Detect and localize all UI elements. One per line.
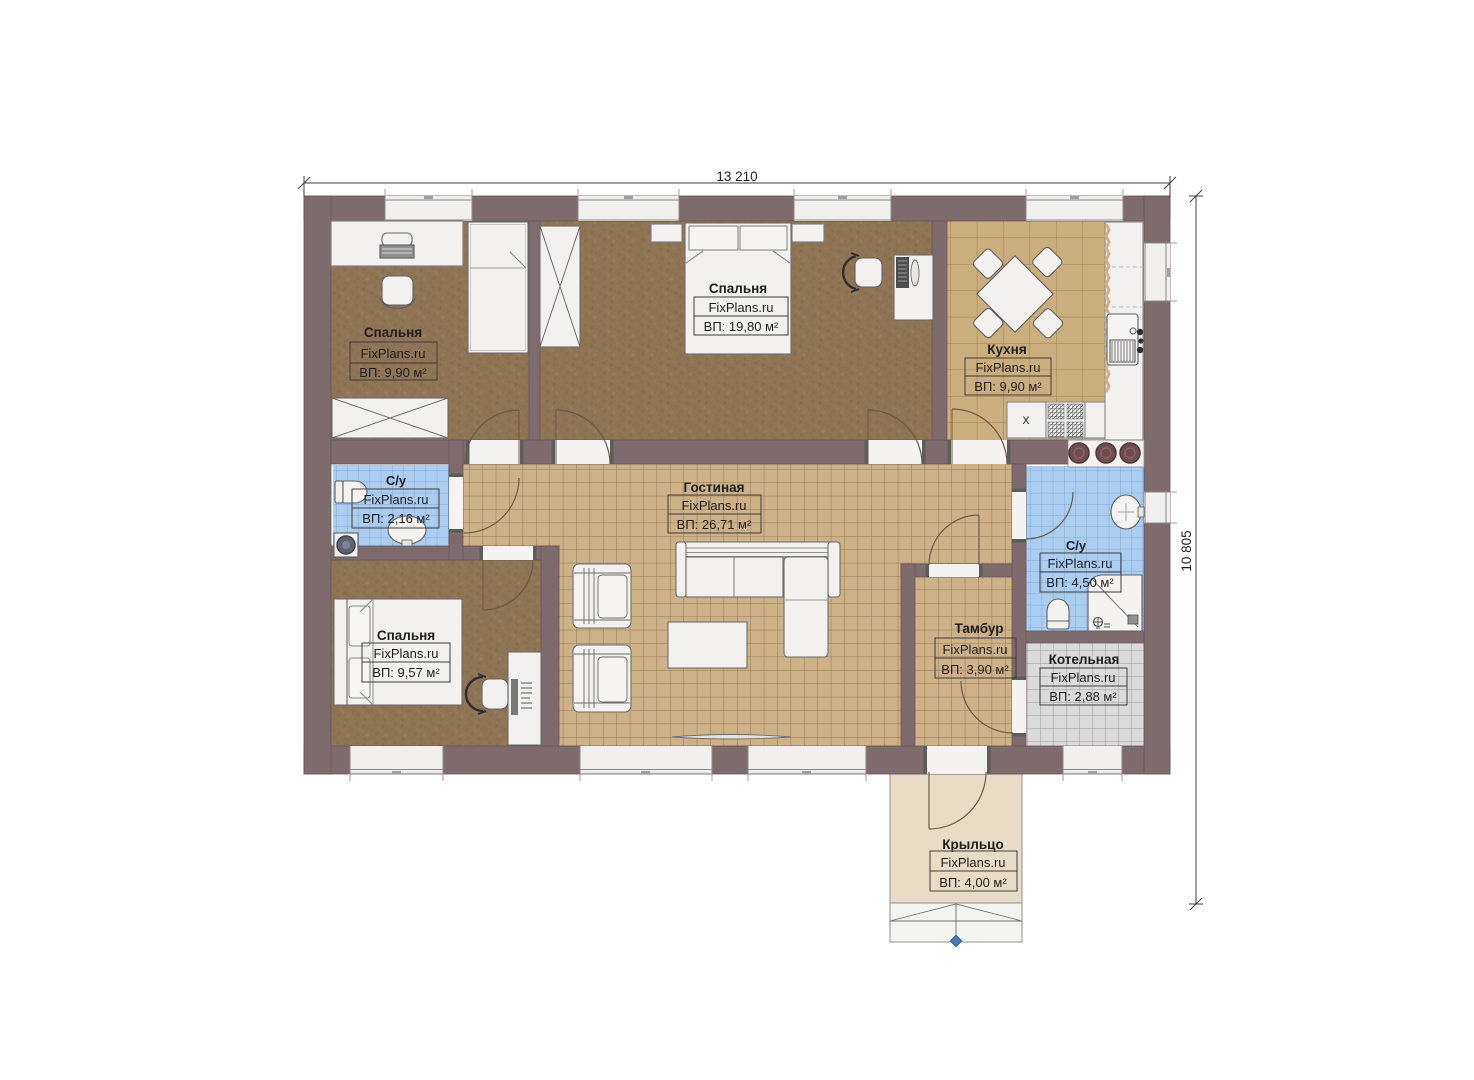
svg-text:ВП: 3,90 м²: ВП: 3,90 м²: [941, 662, 1009, 677]
svg-text:ВП: 2,16 м²: ВП: 2,16 м²: [362, 511, 430, 526]
svg-text:FixPlans.ru: FixPlans.ru: [708, 300, 773, 315]
svg-text:FixPlans.ru: FixPlans.ru: [940, 855, 1005, 870]
svg-text:FixPlans.ru: FixPlans.ru: [942, 642, 1007, 657]
svg-text:Крыльцо: Крыльцо: [942, 837, 1003, 852]
svg-text:FixPlans.ru: FixPlans.ru: [363, 492, 428, 507]
svg-text:С/у: С/у: [386, 473, 407, 488]
svg-text:FixPlans.ru: FixPlans.ru: [360, 346, 425, 361]
svg-text:x: x: [1023, 411, 1030, 427]
svg-text:ВП: 4,00 м²: ВП: 4,00 м²: [939, 875, 1007, 890]
svg-text:FixPlans.ru: FixPlans.ru: [975, 360, 1040, 375]
svg-text:Кухня: Кухня: [987, 342, 1026, 357]
svg-text:ВП: 9,90 м²: ВП: 9,90 м²: [359, 365, 427, 380]
svg-text:Спальня: Спальня: [709, 281, 767, 296]
svg-text:Котельная: Котельная: [1049, 652, 1120, 667]
svg-text:С/у: С/у: [1066, 538, 1087, 553]
svg-text:FixPlans.ru: FixPlans.ru: [1050, 670, 1115, 685]
svg-text:Тамбур: Тамбур: [955, 621, 1004, 636]
svg-text:ВП: 9,57 м²: ВП: 9,57 м²: [372, 665, 440, 680]
svg-text:Гостиная: Гостиная: [683, 480, 744, 495]
svg-text:Спальня: Спальня: [377, 628, 435, 643]
svg-text:Спальня: Спальня: [364, 325, 422, 340]
svg-text:FixPlans.ru: FixPlans.ru: [681, 498, 746, 513]
svg-text:ВП: 26,71 м²: ВП: 26,71 м²: [677, 517, 752, 532]
svg-text:ВП: 9,90 м²: ВП: 9,90 м²: [974, 379, 1042, 394]
svg-text:FixPlans.ru: FixPlans.ru: [373, 646, 438, 661]
svg-text:10 805: 10 805: [1179, 530, 1194, 571]
svg-text:ВП: 19,80 м²: ВП: 19,80 м²: [704, 319, 779, 334]
svg-text:13 210: 13 210: [716, 169, 757, 184]
svg-text:ВП: 2,88 м²: ВП: 2,88 м²: [1049, 689, 1117, 704]
svg-text:FixPlans.ru: FixPlans.ru: [1047, 556, 1112, 571]
svg-text:ВП: 4,50 м²: ВП: 4,50 м²: [1046, 575, 1114, 590]
